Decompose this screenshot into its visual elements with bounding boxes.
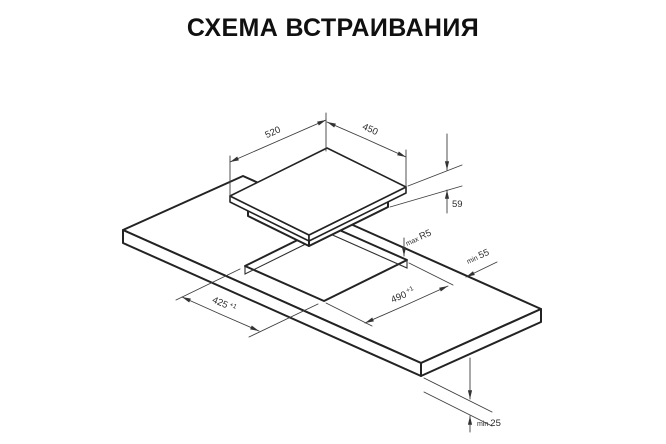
dim-bottom-clearance-label: min25 — [477, 418, 501, 429]
dimension-line — [278, 120, 326, 141]
dim-hob-height: 59 — [390, 134, 463, 213]
extension-line — [408, 165, 462, 186]
dim-hob-height-label: 59 — [452, 199, 463, 210]
dim-edge-clearance: min55 — [465, 247, 497, 277]
product-installation-scheme: СХЕМА ВСТРАИВАНИЯ — [0, 0, 666, 444]
dimension-line — [230, 141, 278, 162]
dimension-line — [220, 314, 259, 331]
installation-diagram: 520 450 59 maxR5 min55 — [0, 0, 666, 444]
dim-cutout-radius-label: maxR5 — [404, 228, 433, 249]
dimension-line — [366, 139, 406, 157]
dim-hob-width-label: 520 — [264, 124, 283, 140]
dim-hob-depth-label: 450 — [361, 121, 380, 137]
extension-line — [424, 378, 492, 412]
dim-edge-clearance-label: min55 — [465, 247, 491, 267]
